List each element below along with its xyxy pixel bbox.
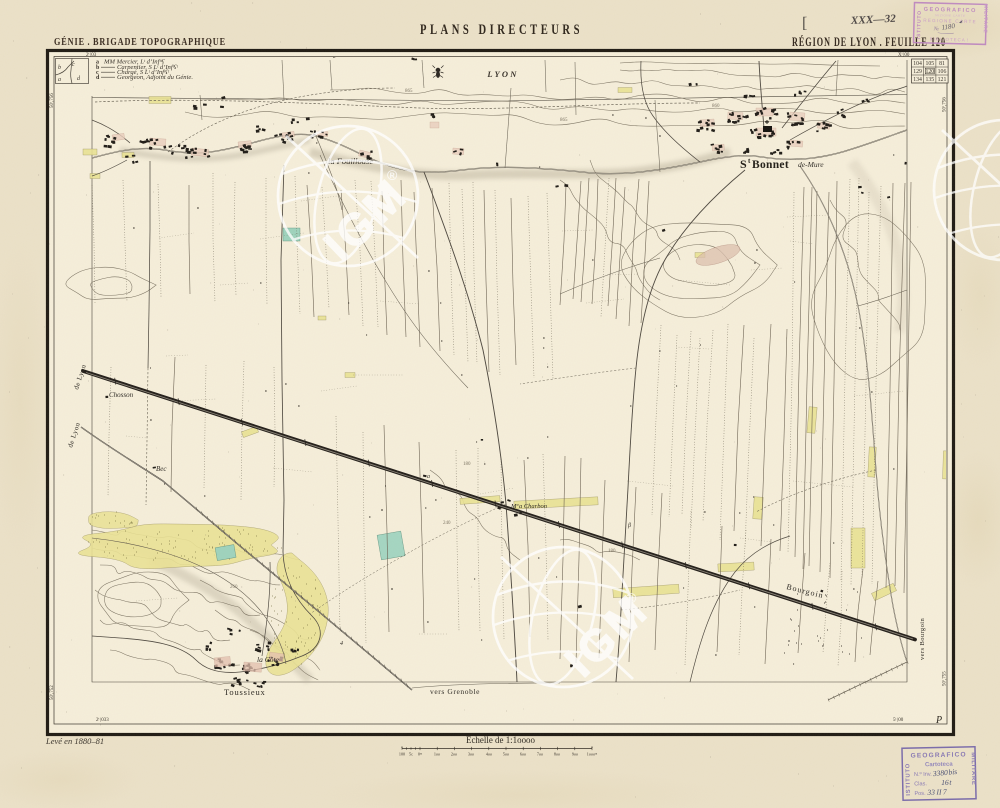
svg-text:ISTITUTO: ISTITUTO xyxy=(916,10,923,39)
svg-text:a: a xyxy=(427,474,430,480)
svg-text:3oo: 3oo xyxy=(468,752,474,757)
svg-text:Levé en 1880–81: Levé en 1880–81 xyxy=(45,736,104,746)
svg-text:S: S xyxy=(740,157,747,171)
svg-text:50ᵗ,756: 50ᵗ,756 xyxy=(50,93,55,108)
svg-text:XXX—32: XXX—32 xyxy=(850,13,897,27)
svg-text:Bonnet: Bonnet xyxy=(752,159,789,171)
svg-text:LYON: LYON xyxy=(486,69,518,79)
svg-text:ISTITUTO: ISTITUTO xyxy=(905,763,912,796)
svg-text:N.º Inv.: N.º Inv. xyxy=(914,771,932,778)
svg-text:BIBLIOTECA !: BIBLIOTECA ! xyxy=(930,36,970,42)
svg-text:SEZIONE CARTE: SEZIONE CARTE xyxy=(935,13,966,18)
svg-text:PLANS DIRECTEURS: PLANS DIRECTEURS xyxy=(420,22,583,38)
svg-text:b: b xyxy=(58,65,61,71)
svg-text:104: 104 xyxy=(913,61,922,67)
svg-text:β: β xyxy=(627,523,631,529)
svg-text:129: 129 xyxy=(913,69,922,75)
svg-text:[: [ xyxy=(802,15,807,32)
svg-text:6oo: 6oo xyxy=(520,752,526,757)
svg-text:MILITARE: MILITARE xyxy=(982,4,989,34)
svg-text:7oo: 7oo xyxy=(537,752,543,757)
svg-text:c: c xyxy=(72,62,75,68)
svg-text:9oo: 9oo xyxy=(572,752,578,757)
svg-text:180: 180 xyxy=(608,549,616,554)
svg-text:RÉGION DE LYON . FEUILLE 120: RÉGION DE LYON . FEUILLE 120 xyxy=(792,35,946,49)
svg-text:vers Bourgoin: vers Bourgoin xyxy=(919,618,926,660)
svg-text:la Côte: la Côte xyxy=(257,655,280,664)
svg-text:135: 135 xyxy=(925,77,934,83)
svg-text:1oo: 1oo xyxy=(434,752,440,757)
svg-text:5ᵗ | 00: 5ᵗ | 00 xyxy=(893,718,904,723)
svg-text:50ᵗ,755: 50ᵗ,755 xyxy=(943,671,948,686)
svg-text:P: P xyxy=(935,715,942,726)
svg-text:81: 81 xyxy=(939,61,945,67)
svg-text:134: 134 xyxy=(913,77,922,83)
svg-text:4oo: 4oo xyxy=(486,752,492,757)
svg-text:865: 865 xyxy=(560,118,568,123)
svg-text:2ᵗ | 033: 2ᵗ | 033 xyxy=(96,718,109,723)
svg-text:16 t: 16 t xyxy=(941,778,952,787)
svg-text:240: 240 xyxy=(443,521,451,526)
svg-text:2oo: 2oo xyxy=(451,752,457,757)
svg-text:0ᵐ: 0ᵐ xyxy=(418,752,422,757)
svg-text:MILITARE: MILITARE xyxy=(970,752,977,785)
svg-text:№: № xyxy=(933,26,939,32)
svg-text:Échelle de 1:1oooo: Échelle de 1:1oooo xyxy=(466,735,535,745)
svg-text:120: 120 xyxy=(925,69,934,75)
svg-text:2ᵗ | 03: 2ᵗ | 03 xyxy=(86,53,97,58)
svg-text:Toussieux: Toussieux xyxy=(224,687,266,697)
svg-text:180: 180 xyxy=(463,462,471,467)
svg-text:106: 106 xyxy=(938,69,947,75)
svg-text:1oooᵐ: 1oooᵐ xyxy=(587,752,597,757)
svg-text:8oo: 8oo xyxy=(554,752,560,757)
svg-text:50ᵗ,752: 50ᵗ,752 xyxy=(50,685,55,700)
svg-text:860: 860 xyxy=(712,104,720,109)
svg-text:de-Mure: de-Mure xyxy=(798,160,824,169)
svg-text:®: ® xyxy=(626,590,637,606)
svg-text:121: 121 xyxy=(938,77,947,83)
svg-text:Chosson: Chosson xyxy=(109,391,134,399)
svg-text:Pos.: Pos. xyxy=(914,791,926,797)
svg-text:GEOGRAFICO: GEOGRAFICO xyxy=(911,751,967,759)
svg-text:Clas.: Clas. xyxy=(914,781,927,787)
svg-text:50ᵗ,756: 50ᵗ,756 xyxy=(943,97,948,112)
svg-text:a: a xyxy=(58,77,61,83)
svg-text:865: 865 xyxy=(405,89,413,94)
svg-text:Bec: Bec xyxy=(156,465,167,473)
svg-text:105: 105 xyxy=(925,61,934,67)
svg-text:GÉNIE . BRIGADE TOPOGRAPHIQUE: GÉNIE . BRIGADE TOPOGRAPHIQUE xyxy=(54,36,226,48)
svg-text:Mº a Charbon: Mº a Charbon xyxy=(510,503,547,510)
svg-text:Xᵗ | 00: Xᵗ | 00 xyxy=(898,53,910,58)
svg-text:100: 100 xyxy=(399,752,405,757)
svg-text:4: 4 xyxy=(340,640,343,647)
svg-text:5oo: 5oo xyxy=(503,752,509,757)
svg-text:Georgeon, Adjoint du Génie.: Georgeon, Adjoint du Génie. xyxy=(117,74,193,81)
svg-text:33 ІІ 7: 33 ІІ 7 xyxy=(926,787,947,796)
svg-text:5c: 5c xyxy=(409,752,413,757)
svg-text:®: ® xyxy=(387,167,398,183)
svg-text:vers Grenoble: vers Grenoble xyxy=(430,687,480,696)
